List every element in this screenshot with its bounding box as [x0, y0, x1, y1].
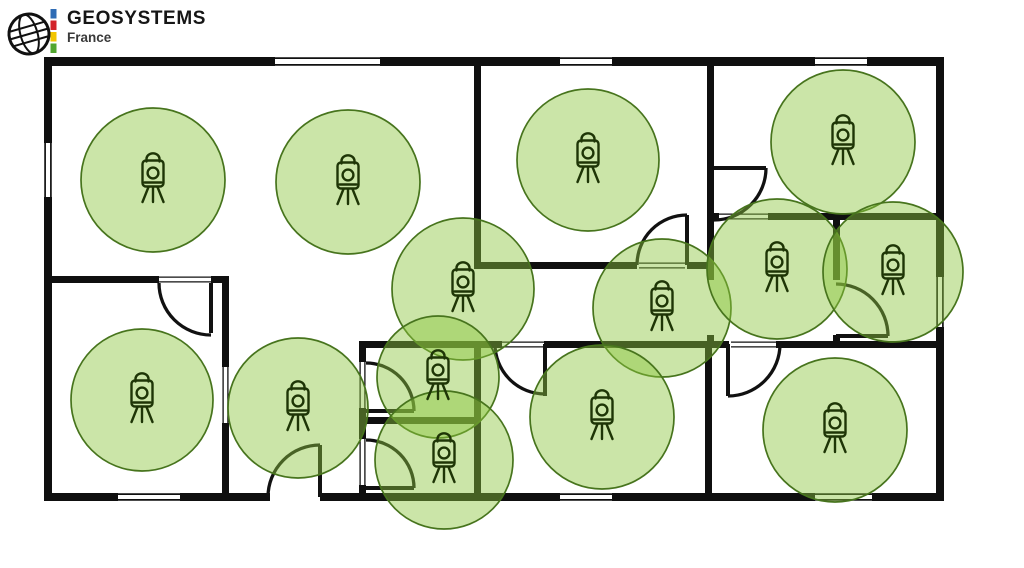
scan-coverage-circle	[823, 202, 963, 342]
scan-coverage-circle	[81, 108, 225, 252]
scan-coverage-circle	[375, 391, 513, 529]
geosystems-logo: GEOSYSTEMS France	[5, 4, 206, 60]
scan-coverage-circle	[763, 358, 907, 502]
scan-coverage-circle	[71, 329, 213, 471]
wall	[359, 341, 366, 362]
brand-name: GEOSYSTEMS	[67, 8, 206, 29]
door-arc	[728, 344, 780, 396]
floor-plan-canvas: GEOSYSTEMS France	[0, 0, 1024, 568]
door-arc	[159, 283, 211, 335]
wall	[211, 276, 229, 283]
floor-plan	[0, 0, 1024, 568]
wall	[44, 276, 159, 283]
brand-region: France	[67, 29, 206, 46]
scan-coverage-circle	[530, 345, 674, 489]
wall	[359, 485, 366, 499]
globe-icon	[5, 4, 59, 60]
scan-coverage-circle	[517, 89, 659, 231]
wall	[776, 341, 944, 348]
scan-coverage-circle	[276, 110, 420, 254]
door-swing	[728, 344, 780, 396]
wall	[705, 341, 712, 499]
door-swing	[159, 283, 211, 335]
scan-coverage-circle	[228, 338, 368, 478]
logo-color-bar	[51, 9, 57, 53]
scan-coverage-circle	[771, 70, 915, 214]
